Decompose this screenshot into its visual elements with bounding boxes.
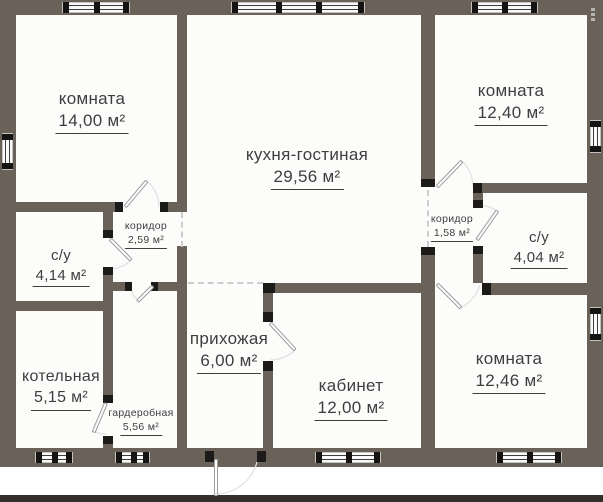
label-corridor-left: коридор 2,59 м² [125, 220, 167, 249]
door-leaf [214, 459, 218, 496]
wall-end-cap [421, 247, 435, 255]
label-wardrobe: гардеробная 5,56 м² [108, 407, 173, 436]
window-mullion [316, 452, 322, 463]
label-office: кабинет 12,00 м² [314, 375, 387, 421]
wall-end-cap [473, 183, 482, 193]
wall-end-cap [115, 202, 123, 212]
window [496, 452, 562, 463]
wall-end-cap [473, 200, 483, 208]
room-name: кухня-гостиная [246, 144, 368, 166]
wall-end-cap [473, 246, 483, 254]
room-name: комната [472, 348, 545, 370]
window [62, 2, 130, 13]
window-mullion [2, 163, 13, 169]
window-mullion [502, 2, 508, 13]
wall-end-cap [103, 267, 113, 275]
door-swing-arc [462, 161, 473, 187]
door-swing-arc [270, 350, 295, 360]
door-swing-arc [461, 285, 480, 308]
door-swing-arc [110, 260, 131, 269]
window-mullion [276, 2, 282, 13]
wall-end-cap [421, 179, 435, 187]
label-kitchen-living: кухня-гостиная 29,56 м² [246, 144, 368, 190]
window-mullion [590, 308, 601, 314]
window-mullion [472, 2, 478, 13]
window [231, 2, 365, 13]
window [471, 2, 538, 13]
wall-end-cap [257, 451, 266, 462]
floor-plan: комната 14,00 м² кухня-гостиная 29,56 м²… [0, 0, 603, 502]
room-name: с/у [33, 246, 90, 266]
window-mullion [66, 452, 72, 463]
window-mullion [374, 452, 380, 463]
room-area: 4,14 м² [33, 266, 90, 288]
window-mullion [123, 2, 129, 13]
window-mullion [555, 452, 561, 463]
window-mullion [531, 2, 537, 13]
label-room-top-left: комната 14,00 м² [55, 88, 128, 134]
wall-end-cap [205, 451, 214, 462]
window [115, 452, 150, 463]
room-area: 12,46 м² [472, 370, 545, 394]
window-mullion [131, 452, 137, 463]
room-area: 2,59 м² [125, 234, 167, 250]
window-mullion [52, 452, 58, 463]
wall-end-cap [263, 283, 275, 293]
window-mullion [2, 134, 13, 140]
wall-end-cap [125, 282, 132, 291]
window-mullion [316, 2, 322, 13]
room-area: 5,15 м² [31, 388, 91, 411]
room-name: комната [55, 88, 128, 110]
window [35, 452, 73, 463]
window-mullion [590, 334, 601, 340]
window-mullion [232, 2, 238, 13]
window-mullion [590, 121, 601, 127]
room-name: с/у [511, 228, 568, 248]
room-area: 14,00 м² [55, 110, 128, 134]
window-mullion [63, 2, 69, 13]
window-glass [232, 5, 364, 10]
door-swing-arc [216, 462, 257, 494]
window [590, 307, 601, 341]
wall-end-cap [482, 283, 491, 295]
label-room-top-right: комната 12,40 м² [474, 80, 547, 126]
window-mullion [346, 452, 352, 463]
wall-end-cap [103, 436, 113, 444]
window-mullion [94, 2, 100, 13]
room-area: 1,58 м² [431, 227, 473, 243]
room-name: коридор [431, 213, 473, 227]
window-mullion [497, 452, 503, 463]
room-area: 12,40 м² [474, 102, 547, 126]
label-corridor-right: коридор 1,58 м² [431, 213, 473, 242]
window [315, 452, 381, 463]
room-area: 12,00 м² [314, 397, 387, 421]
label-hallway: прихожая 6,00 м² [190, 328, 268, 374]
window-mullion [527, 452, 533, 463]
room-area: 5,56 м² [120, 421, 162, 437]
label-room-bottom-right: комната 12,46 м² [472, 348, 545, 394]
door-swing-arc [147, 181, 159, 207]
window [2, 133, 13, 170]
label-bathroom-left: с/у 4,14 м² [33, 246, 90, 287]
more-options-icon[interactable] [591, 8, 595, 21]
room-name: комната [474, 80, 547, 102]
wall-end-cap [263, 312, 273, 322]
window-mullion [590, 146, 601, 152]
window-mullion [36, 452, 42, 463]
label-bathroom-right: с/у 4,04 м² [511, 228, 568, 269]
window-mullion [358, 2, 364, 13]
room-area: 29,56 м² [270, 166, 343, 190]
window-mullion [116, 452, 122, 463]
room-area: 4,04 м² [511, 248, 568, 270]
wall-end-cap [160, 202, 168, 212]
window-mullion [143, 452, 149, 463]
room-name: котельная [22, 367, 100, 388]
room-name: коридор [125, 220, 167, 234]
window [590, 120, 601, 153]
label-boiler-room: котельная 5,15 м² [22, 367, 100, 411]
room-name: кабинет [314, 375, 387, 397]
room-name: прихожая [190, 328, 268, 350]
room-area: 6,00 м² [197, 350, 260, 374]
room-name: гардеробная [108, 407, 173, 421]
